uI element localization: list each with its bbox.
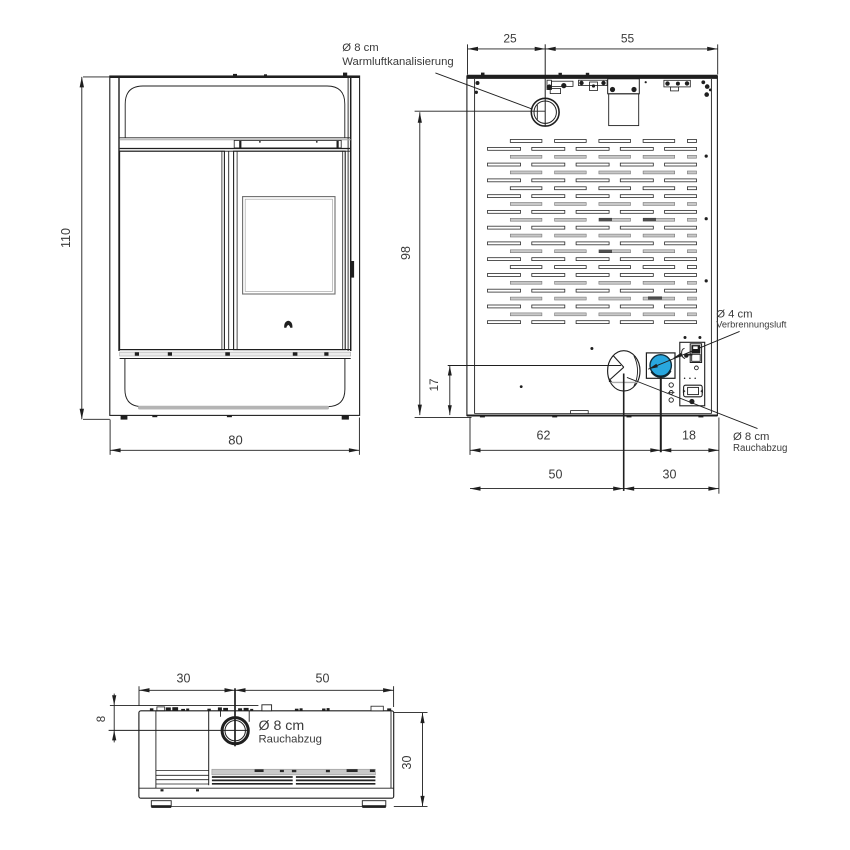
svg-text:62: 62 (537, 429, 551, 443)
svg-text:Warmluftkanalisierung: Warmluftkanalisierung (342, 56, 453, 68)
svg-text:Ø 8 cm: Ø 8 cm (342, 42, 378, 54)
svg-text:Rauchabzug: Rauchabzug (733, 443, 787, 454)
svg-text:25: 25 (503, 32, 517, 46)
svg-text:30: 30 (400, 756, 414, 770)
svg-text:18: 18 (682, 429, 696, 443)
svg-text:Ø 8 cm: Ø 8 cm (259, 718, 305, 734)
svg-text:8: 8 (96, 716, 108, 722)
svg-text:98: 98 (399, 246, 413, 260)
svg-text:30: 30 (177, 671, 191, 685)
svg-text:55: 55 (621, 32, 635, 46)
svg-text:Ø 4 cm: Ø 4 cm (716, 308, 752, 320)
svg-text:50: 50 (316, 671, 330, 685)
svg-text:110: 110 (59, 228, 73, 248)
svg-text:50: 50 (549, 467, 563, 481)
svg-text:30: 30 (663, 467, 677, 481)
svg-text:17: 17 (429, 379, 441, 392)
svg-text:80: 80 (228, 433, 242, 448)
svg-text:Verbrennungsluft: Verbrennungsluft (716, 320, 787, 330)
svg-text:Rauchabzug: Rauchabzug (259, 734, 322, 746)
svg-text:Ø 8 cm: Ø 8 cm (733, 431, 769, 443)
